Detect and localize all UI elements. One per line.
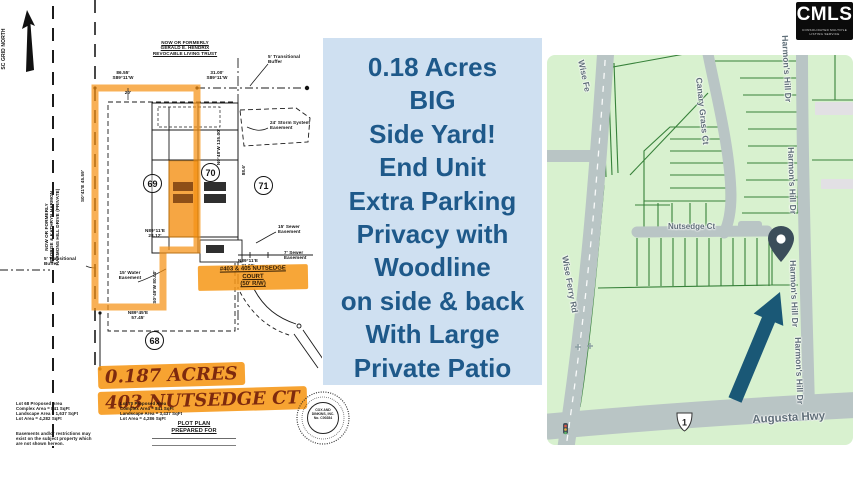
- unit-hatch-2: [204, 194, 226, 203]
- cmls-logo-tagline: CONSOLIDATED MULTIPLE LISTING SERVICE: [796, 28, 853, 36]
- sewer15-note: 15' Sewer Easement: [278, 224, 322, 235]
- cmls-logo: CMLS CONSOLIDATED MULTIPLE LISTING SERVI…: [796, 2, 853, 40]
- lot-notes-right: Lot 70 Proposed Area Complex Area = 841 …: [120, 401, 218, 421]
- leader-line-storm: [247, 127, 268, 130]
- surveyor-seal: COX AND DINKINS, INC. No. C00284: [292, 389, 354, 447]
- owner-note-top: NOW OR FORMERLY GERALD E. HENDRIX REVOCA…: [135, 40, 235, 56]
- nutsedge-label: Nutsedge Ct: [668, 222, 715, 231]
- lot-notes-left: Lot 68 Proposed Area Complex Area = 841 …: [16, 401, 114, 421]
- callout-line-5: Extra Parking: [323, 185, 542, 218]
- street-name-highlight: #403 & 405 NUTSEDGE COURT (50' R/W): [198, 264, 308, 290]
- north-label: SC GRID NORTH: [2, 14, 8, 84]
- dim-31: 31.00' S89°11'W: [196, 70, 238, 81]
- monument-point: [98, 311, 101, 314]
- location-map: 1 Wise Fe Wise Ferry Rd Canary Grass Ct …: [540, 55, 853, 445]
- callout-line-8: on side & back: [323, 285, 542, 318]
- dim-86: 86.55' S89°11'W: [100, 70, 146, 81]
- buffer-note-2: 5' Transitional Buffer: [44, 256, 86, 267]
- highlighted-unit-hatch-2: [173, 194, 193, 203]
- dim-20: 20': [118, 90, 138, 95]
- dim-886: 88.6': [241, 155, 246, 185]
- callout-line-4: End Unit: [323, 151, 542, 184]
- harmons-hill-label-top: Harmon's Hill Dr: [780, 35, 793, 102]
- highlighted-unit-hatch: [173, 182, 193, 191]
- nutsedge-road: [637, 231, 767, 232]
- court-edge-dashed: [240, 292, 292, 336]
- lot-70-marker: 70: [201, 163, 220, 182]
- water15-note: 15' Water Easement: [108, 270, 152, 281]
- callout-line-7: Woodline: [323, 251, 542, 284]
- callout-line-1: 0.18 Acres: [323, 51, 542, 84]
- sewer7-note: 7' Sewer Easement: [284, 250, 324, 261]
- callout-line-9: With Large: [323, 318, 542, 351]
- listing-photo: SC GRID NORTH NOW OR FORMERLY GERALD E. …: [0, 0, 853, 480]
- unit-hatch: [204, 182, 226, 191]
- dim-80: S0°49'W 80.00': [152, 262, 157, 312]
- dim-2812: N89°11'E 28.12': [135, 228, 175, 239]
- leader-line-buffer: [250, 64, 268, 86]
- handwritten-acreage: 0.187 ACRES: [98, 362, 245, 389]
- remarks-callout: 0.18 Acres BIG Side Yard! End Unit Extra…: [323, 38, 542, 385]
- callout-line-6: Privacy with: [323, 218, 542, 251]
- cmls-logo-text: CMLS: [796, 2, 853, 28]
- seal-text: COX AND DINKINS, INC. No. C00284: [307, 408, 339, 420]
- owner-note-left: NOW OR FORMERLY GEORGE & KATHRYN HARMON …: [44, 162, 60, 292]
- buffer-note: 5' Transitional Buffer: [268, 54, 320, 65]
- route-1-number: 1: [682, 418, 687, 428]
- drive-edges: [294, 330, 322, 368]
- court-edge: [254, 289, 296, 324]
- dim-5745: N89°45'E 57.45': [116, 310, 160, 321]
- prepared-for-title: PLOT PLAN PREPARED FOR: [152, 421, 236, 434]
- court-point: [297, 324, 301, 328]
- lot-68-marker: 68: [145, 331, 164, 350]
- building-footprint: [815, 102, 853, 115]
- callout-line-10: Private Patio: [323, 352, 542, 385]
- plot-plan: SC GRID NORTH NOW OR FORMERLY GERALD E. …: [0, 0, 322, 480]
- lot-69-marker: 69: [143, 174, 162, 193]
- survey-point: [305, 86, 309, 90]
- north-arrow-icon: [22, 10, 35, 72]
- building-footprint-2: [821, 179, 853, 189]
- prepared-for-name-lines: [152, 438, 236, 446]
- disclaimer-note: Easements and/or restrictions may exist …: [16, 431, 120, 446]
- storm-note: 24' Storm System Easement: [270, 120, 322, 131]
- callout-line-2: BIG: [323, 84, 542, 117]
- lower-unit-hatch: [206, 245, 224, 253]
- callout-line-3: Side Yard!: [323, 118, 542, 151]
- map-drawing: 1: [540, 55, 853, 445]
- leader-line-sewer: [256, 232, 276, 243]
- dim-left-vertical: S0°41'E 45.59': [80, 160, 85, 212]
- lot-71-marker: 71: [254, 176, 273, 195]
- traffic-signal-icon: [563, 423, 568, 434]
